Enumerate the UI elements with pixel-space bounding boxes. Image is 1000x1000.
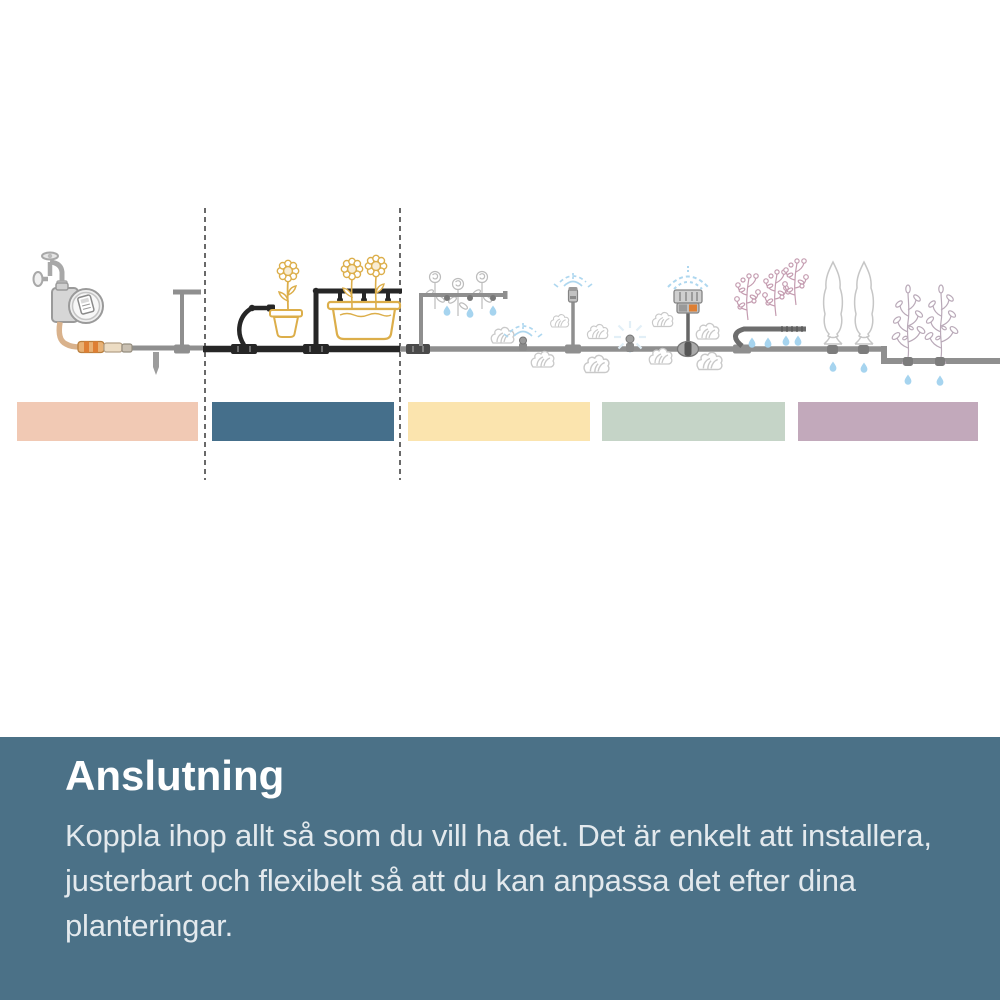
zone-band-2 bbox=[212, 402, 394, 441]
rose-icon bbox=[448, 279, 469, 317]
description-line: planteringar. bbox=[65, 903, 960, 948]
description-line: Koppla ihop allt så som du vill ha det. … bbox=[65, 813, 960, 858]
cypress-tree-icon bbox=[824, 262, 843, 344]
pipe-connector-right bbox=[406, 344, 430, 354]
zone-band-3 bbox=[408, 402, 590, 441]
irrigation-diagram bbox=[0, 0, 1000, 520]
shrub-row-drip-line bbox=[891, 285, 959, 386]
zone-band-5 bbox=[798, 402, 978, 441]
rose-icon bbox=[425, 272, 446, 310]
product-info-image: Anslutning Koppla ihop allt så som du vi… bbox=[0, 0, 1000, 1000]
shrub-icon bbox=[891, 285, 926, 365]
garden-tap-icon bbox=[34, 253, 68, 288]
shrub-icon bbox=[924, 285, 959, 365]
garden-hose bbox=[59, 322, 132, 353]
cypress-trees bbox=[824, 262, 874, 373]
description-text: Koppla ihop allt så som du vill ha det. … bbox=[65, 813, 960, 948]
hose-coupling bbox=[104, 343, 122, 352]
pipe-connector-left bbox=[231, 344, 257, 354]
rose-icon bbox=[472, 272, 493, 310]
riser-micro-sprinkler-icon bbox=[554, 273, 592, 354]
flowering-shrub-icon bbox=[783, 259, 809, 305]
zone-band-4 bbox=[602, 402, 785, 441]
info-panel: Anslutning Koppla ihop allt så som du vi… bbox=[0, 737, 1000, 1000]
page-title: Anslutning bbox=[65, 753, 960, 799]
sprinkler-burst-icon bbox=[614, 321, 646, 353]
pipe-end-riser-icon bbox=[173, 292, 201, 354]
tomato-plant-icon bbox=[735, 274, 761, 320]
zone-band-1 bbox=[17, 402, 198, 441]
large-sprinkler-icon bbox=[668, 264, 708, 357]
pipe-coupling bbox=[122, 344, 132, 352]
potted-sunflower-icon bbox=[270, 260, 302, 337]
water-timer-icon bbox=[52, 283, 103, 323]
cypress-tree-icon bbox=[855, 262, 874, 344]
zone-bands bbox=[17, 402, 978, 441]
hose-connector-orange-icon bbox=[78, 342, 104, 353]
ground-stake-icon bbox=[153, 352, 159, 375]
tomato-plant-icon bbox=[763, 270, 789, 316]
description-line: justerbart och flexibelt så att du kan a… bbox=[65, 858, 960, 903]
